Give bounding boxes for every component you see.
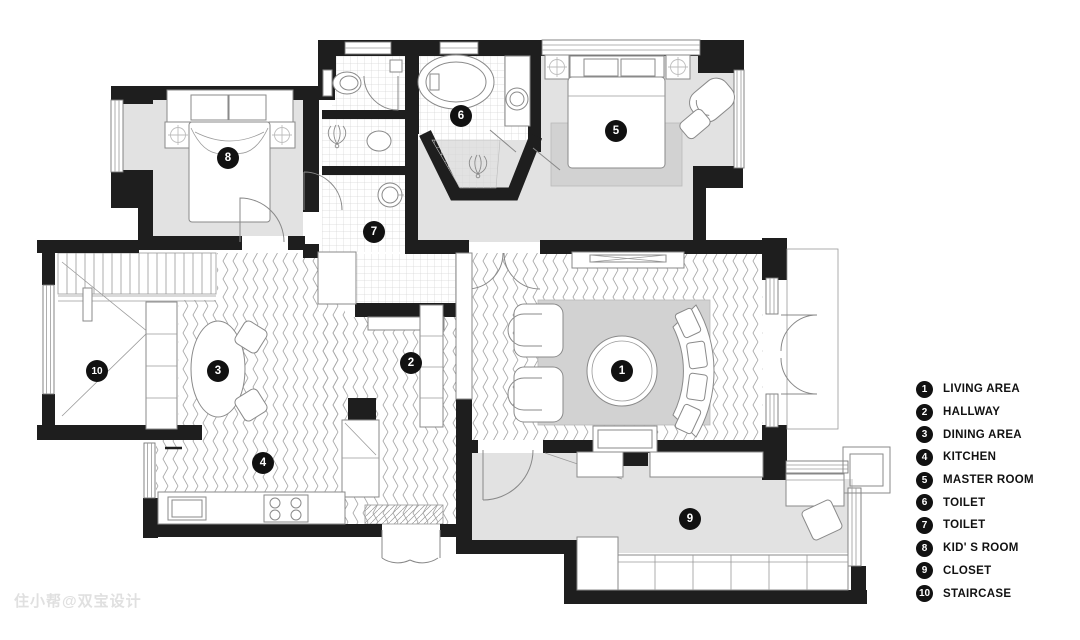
sideboard <box>146 302 177 429</box>
master-pillow-right <box>621 59 655 76</box>
hall-cabinet <box>420 305 443 427</box>
kids-pillow-left <box>191 95 228 120</box>
legend: 1LIVING AREA2HALLWAY3DINING AREA4KITCHEN… <box>916 378 1034 605</box>
legend-label: DINING AREA <box>943 429 1022 441</box>
master-nightstand-right <box>666 55 690 79</box>
legend-item: 5MASTER ROOM <box>916 469 1034 492</box>
legend-label: MASTER ROOM <box>943 474 1034 486</box>
window-closet-right <box>848 488 861 566</box>
window-closet-top <box>786 461 848 473</box>
stair-newel-post <box>83 288 92 321</box>
partition-wall <box>456 253 472 399</box>
room-badge-staircase: 10 <box>86 360 108 382</box>
legend-label: TOILET <box>943 497 985 509</box>
legend-number: 2 <box>916 404 933 421</box>
legend-number: 6 <box>916 494 933 511</box>
room-badge-master-room: 5 <box>605 120 627 142</box>
tv-console <box>572 252 684 268</box>
kids-bed <box>189 122 270 222</box>
legend-item: 7TOILET <box>916 514 1034 537</box>
armchair-top <box>508 304 563 357</box>
legend-number: 3 <box>916 426 933 443</box>
bottom-niche <box>593 426 657 452</box>
legend-number: 5 <box>916 472 933 489</box>
wardrobe <box>617 555 848 590</box>
entry-threshold <box>365 505 443 524</box>
toilet7-corridor-floor <box>355 254 458 303</box>
legend-item: 3DINING AREA <box>916 423 1034 446</box>
legend-item: 8KID' S ROOM <box>916 537 1034 560</box>
kids-nightstand-left <box>165 122 191 148</box>
vanity-sink <box>505 56 530 126</box>
window-stairs <box>43 285 54 394</box>
wc-drain <box>390 60 402 72</box>
closet-cabinet-long <box>650 452 763 477</box>
legend-number: 4 <box>916 449 933 466</box>
window-kitchen <box>144 443 155 498</box>
window-balcony-lower <box>766 394 778 427</box>
room-badge-toilet-master: 6 <box>450 105 472 127</box>
fridge <box>342 420 379 497</box>
legend-label: HALLWAY <box>943 406 1000 418</box>
armchair-bottom <box>508 367 563 422</box>
stair-direction-line <box>62 262 148 416</box>
bidet <box>367 131 391 151</box>
shaft <box>318 252 356 304</box>
master-nightstand-left <box>545 55 569 79</box>
room-badge-kitchen: 4 <box>252 452 274 474</box>
legend-item: 2HALLWAY <box>916 401 1034 424</box>
balcony-outline <box>787 249 838 429</box>
hallway-floor-top <box>217 253 318 300</box>
entry-double-door <box>382 530 440 563</box>
legend-item: 4KITCHEN <box>916 446 1034 469</box>
legend-number: 9 <box>916 562 933 579</box>
kids-bay-sill <box>123 100 151 172</box>
room-badge-hallway: 2 <box>400 352 422 374</box>
window-balcony-upper <box>766 278 778 314</box>
room-badge-closet: 9 <box>679 508 701 530</box>
legend-label: KID' S ROOM <box>943 542 1019 554</box>
window-top-1 <box>345 42 391 54</box>
legend-number: 1 <box>916 381 933 398</box>
legend-label: STAIRCASE <box>943 588 1011 600</box>
legend-item: 6TOILET <box>916 491 1034 514</box>
legend-label: TOILET <box>943 519 985 531</box>
room-badge-dining-area: 3 <box>207 360 229 382</box>
room-badge-toilet-hall: 7 <box>363 221 385 243</box>
master-pillow-left <box>584 59 618 76</box>
room-badge-kids-room: 8 <box>217 147 239 169</box>
kids-nightstand-right <box>269 122 295 148</box>
legend-number: 8 <box>916 540 933 557</box>
bathtub <box>418 55 494 109</box>
closet-cabinet-left <box>577 537 618 590</box>
balcony-door-leaves <box>781 315 817 394</box>
ac-unit <box>843 447 890 493</box>
balcony-french-doors <box>781 315 817 394</box>
floor-plan-page: 12345678910 1LIVING AREA2HALLWAY3DINING … <box>0 0 1080 640</box>
legend-number: 10 <box>916 585 933 602</box>
legend-label: CLOSET <box>943 565 991 577</box>
wc-toilet <box>323 70 361 96</box>
legend-item: 10STAIRCASE <box>916 582 1034 605</box>
balcony <box>781 249 838 429</box>
legend-item: 1LIVING AREA <box>916 378 1034 401</box>
room-badge-living-area: 1 <box>611 360 633 382</box>
closet-cabinet-small <box>577 452 623 477</box>
window-master-top <box>542 40 700 55</box>
legend-item: 9CLOSET <box>916 560 1034 583</box>
legend-number: 7 <box>916 517 933 534</box>
kids-pillow-right <box>229 95 266 120</box>
legend-label: KITCHEN <box>943 451 996 463</box>
desk <box>786 474 844 506</box>
window-kids-bay <box>111 100 123 172</box>
window-master-right <box>734 70 744 168</box>
legend-label: LIVING AREA <box>943 383 1020 395</box>
watermark: 住小帮@双宝设计 <box>14 590 142 611</box>
window-top-2 <box>440 42 478 54</box>
